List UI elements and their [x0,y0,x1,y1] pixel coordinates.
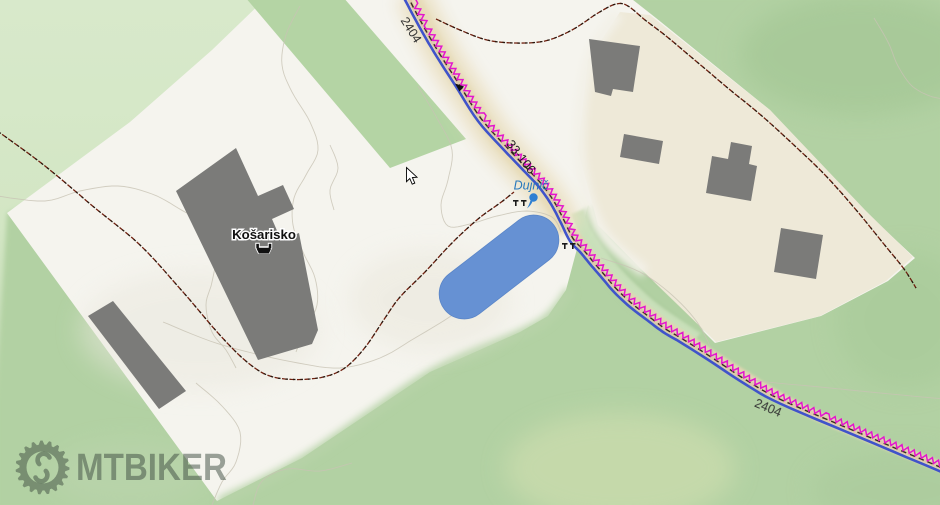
svg-text:Košarisko: Košarisko [232,227,296,242]
svg-text:MTBIKER: MTBIKER [76,447,227,489]
svg-text:Dujnič: Dujnič [514,179,549,193]
